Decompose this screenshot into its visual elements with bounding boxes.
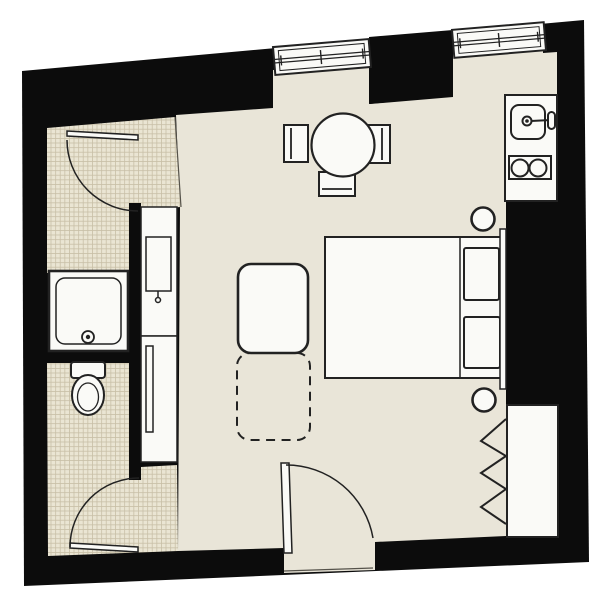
bathroom-partition-wall <box>129 203 141 480</box>
washbasin-tap-dot <box>156 298 161 303</box>
bedside-stool <box>472 208 495 231</box>
floor-plan-canvas <box>0 0 605 600</box>
floor-plan <box>0 0 605 600</box>
toilet <box>71 362 105 415</box>
wardrobe-niche <box>507 405 558 537</box>
round-dining-table <box>312 114 375 177</box>
toilet-bowl <box>72 375 104 415</box>
faucet-lever <box>548 112 555 129</box>
shower <box>49 271 128 351</box>
burner <box>530 160 547 177</box>
bedside-stool <box>473 389 496 412</box>
pillow <box>464 248 499 300</box>
shower-tray-inner <box>56 278 121 344</box>
sofa <box>238 264 308 353</box>
burner <box>512 160 529 177</box>
pillow <box>464 317 500 368</box>
tall-cabinet <box>146 346 153 432</box>
storage-strip <box>141 207 177 462</box>
window-pier-wall <box>369 30 453 104</box>
headboard <box>500 229 506 389</box>
washbasin-unit <box>146 237 171 291</box>
shower-drain-dot <box>86 335 90 339</box>
kitchenette <box>505 95 557 201</box>
double-bed <box>325 229 506 389</box>
dining-chair <box>284 125 308 162</box>
faucet-dot <box>525 119 529 123</box>
